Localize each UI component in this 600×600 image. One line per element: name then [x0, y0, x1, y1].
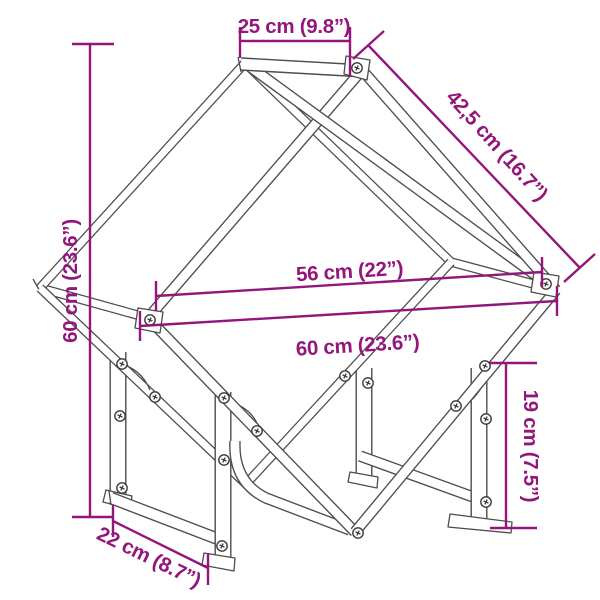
dimension-total-height-label: 60 cm (23.6”) [59, 219, 82, 343]
screw-icon [340, 371, 350, 381]
screw-icon [117, 483, 127, 493]
base-rail-left [109, 491, 218, 539]
dimension-top-depth-label: 25 cm (9.8”) [238, 15, 351, 38]
screw-icon [481, 497, 491, 507]
screw-icon [353, 528, 363, 538]
dimension-outer-width-label: 60 cm (23.6”) [295, 330, 420, 361]
diagram-canvas: 25 cm (9.8”) 42,5 cm (16.7”) 56 cm (22”)… [0, 0, 600, 600]
firewood-rack-dimension-diagram: 25 cm (9.8”) 42,5 cm (16.7”) 56 cm (22”)… [0, 0, 600, 600]
screw-icon [145, 315, 155, 325]
screw-icon [219, 393, 229, 403]
dimension-leg-height-label: 19 cm (7.5”) [519, 390, 542, 503]
screw-icon [115, 411, 125, 421]
dimension-total-height: 60 cm (23.6”) [59, 44, 114, 517]
dimension-inner-width: 56 cm (22”) [156, 257, 542, 311]
screw-icon [481, 414, 491, 424]
screw-icon [363, 378, 373, 388]
screw-icon [217, 541, 227, 551]
screw-icon [252, 426, 262, 436]
screw-icon [117, 359, 127, 369]
dimension-leg-height: 19 cm (7.5”) [490, 363, 542, 528]
screw-icon [150, 392, 160, 402]
screw-icon [352, 63, 362, 73]
dimension-diagonal-side: 42,5 cm (16.7”) [353, 31, 595, 282]
front-right-leg [448, 368, 512, 533]
screw-icon [451, 401, 461, 411]
screw-icon [219, 455, 229, 465]
dimension-outer-width: 60 cm (23.6”) [140, 286, 557, 361]
back-right-foot [348, 472, 378, 488]
screw-icon [480, 361, 490, 371]
